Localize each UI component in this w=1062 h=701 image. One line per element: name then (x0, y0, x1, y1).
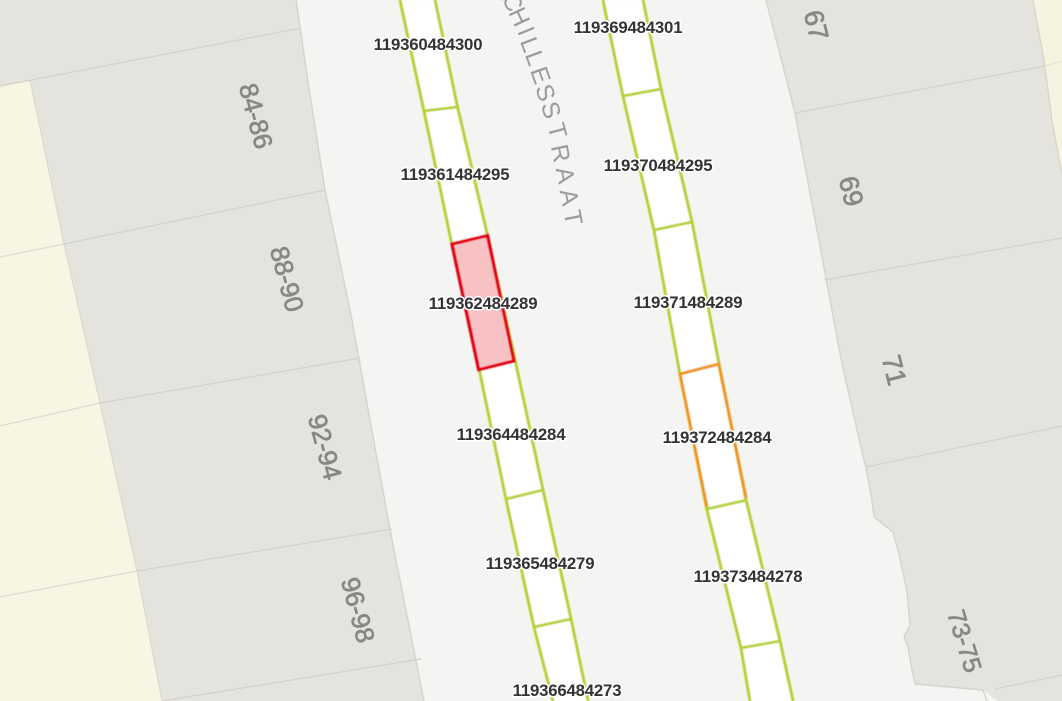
svg-text:119360484300: 119360484300 (374, 35, 483, 54)
svg-text:119370484295: 119370484295 (604, 156, 713, 175)
svg-text:119372484284: 119372484284 (663, 428, 773, 447)
svg-text:119362484289: 119362484289 (429, 294, 538, 313)
svg-text:119373484278: 119373484278 (694, 567, 803, 586)
svg-text:119369484301: 119369484301 (574, 18, 683, 37)
svg-text:119361484295: 119361484295 (401, 165, 510, 184)
svg-text:119364484284: 119364484284 (457, 425, 567, 444)
svg-text:119365484279: 119365484279 (486, 554, 595, 573)
svg-text:119366484273: 119366484273 (513, 681, 622, 700)
svg-text:119371484289: 119371484289 (634, 293, 743, 312)
